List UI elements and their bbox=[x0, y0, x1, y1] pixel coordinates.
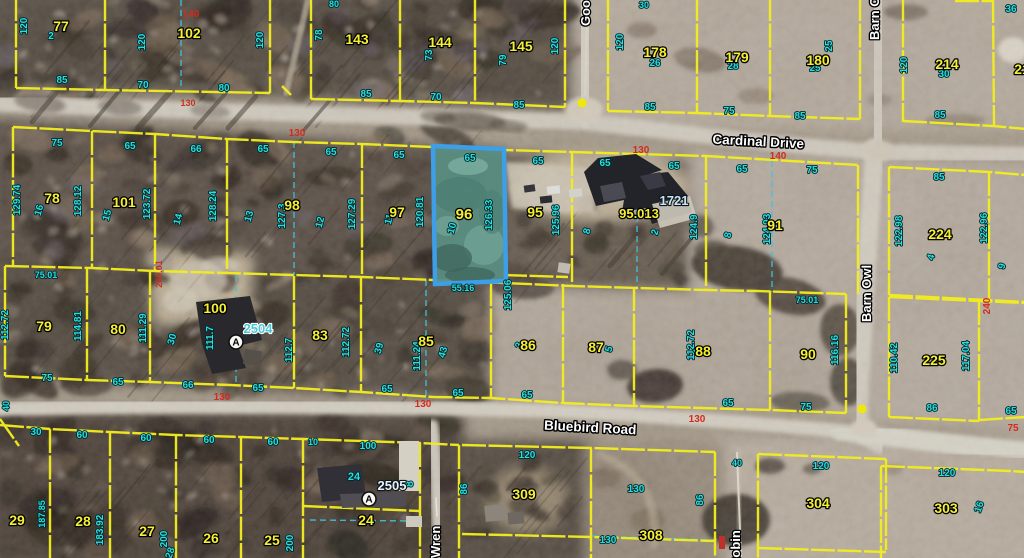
svg-text:308: 308 bbox=[639, 527, 663, 543]
svg-text:65: 65 bbox=[124, 141, 136, 152]
svg-text:40: 40 bbox=[732, 458, 742, 468]
svg-text:27: 27 bbox=[139, 523, 155, 539]
svg-text:110.42: 110.42 bbox=[889, 343, 900, 373]
svg-text:36: 36 bbox=[1005, 4, 1017, 15]
svg-text:120.81: 120.81 bbox=[415, 196, 426, 227]
svg-text:60: 60 bbox=[76, 430, 88, 441]
svg-text:78: 78 bbox=[44, 190, 60, 206]
svg-text:Robin: Robin bbox=[728, 530, 743, 558]
svg-text:111.29: 111.29 bbox=[138, 313, 149, 343]
svg-text:77: 77 bbox=[53, 18, 69, 34]
svg-text:304: 304 bbox=[806, 495, 830, 511]
svg-text:130: 130 bbox=[689, 414, 706, 425]
svg-text:60: 60 bbox=[267, 437, 279, 448]
svg-text:120: 120 bbox=[615, 33, 626, 50]
svg-text:240: 240 bbox=[982, 297, 993, 314]
svg-text:65: 65 bbox=[257, 144, 269, 155]
svg-text:65: 65 bbox=[381, 384, 393, 395]
svg-text:30: 30 bbox=[639, 0, 649, 10]
svg-text:60: 60 bbox=[140, 433, 152, 444]
svg-text:130: 130 bbox=[180, 98, 195, 108]
svg-text:187.85: 187.85 bbox=[37, 500, 47, 528]
svg-text:75: 75 bbox=[806, 165, 818, 176]
svg-text:117.04: 117.04 bbox=[961, 341, 972, 371]
svg-text:260.01: 260.01 bbox=[154, 260, 164, 288]
svg-text:80: 80 bbox=[329, 0, 339, 9]
svg-text:130: 130 bbox=[600, 535, 617, 546]
svg-text:100: 100 bbox=[203, 300, 227, 316]
svg-text:101: 101 bbox=[112, 194, 136, 210]
svg-text:86: 86 bbox=[459, 483, 470, 495]
svg-text:120: 120 bbox=[519, 450, 536, 461]
svg-text:Barn Ow: Barn Ow bbox=[867, 0, 882, 40]
svg-text:24: 24 bbox=[348, 471, 361, 483]
svg-text:2505: 2505 bbox=[378, 478, 407, 493]
svg-text:A: A bbox=[365, 495, 372, 506]
svg-text:75: 75 bbox=[41, 373, 53, 384]
svg-text:145: 145 bbox=[509, 38, 533, 54]
svg-text:98: 98 bbox=[284, 197, 300, 213]
svg-text:120: 120 bbox=[255, 31, 266, 48]
svg-text:70: 70 bbox=[430, 92, 442, 103]
svg-text:91: 91 bbox=[767, 217, 783, 233]
svg-text:70: 70 bbox=[137, 80, 149, 91]
svg-text:75: 75 bbox=[723, 106, 735, 117]
svg-text:120: 120 bbox=[137, 33, 148, 50]
svg-text:40: 40 bbox=[1, 401, 11, 411]
svg-text:90: 90 bbox=[800, 346, 816, 362]
svg-text:21: 21 bbox=[1014, 61, 1024, 77]
svg-text:86: 86 bbox=[520, 337, 536, 353]
svg-text:125.06: 125.06 bbox=[503, 279, 514, 310]
svg-text:225: 225 bbox=[922, 352, 946, 368]
svg-text:65: 65 bbox=[736, 164, 748, 175]
svg-text:122.96: 122.96 bbox=[979, 212, 990, 243]
svg-text:85: 85 bbox=[360, 89, 372, 100]
svg-text:96: 96 bbox=[456, 206, 473, 223]
svg-text:75.01: 75.01 bbox=[796, 295, 819, 305]
svg-text:A: A bbox=[232, 338, 239, 349]
svg-text:120: 120 bbox=[19, 17, 30, 34]
svg-text:130: 130 bbox=[289, 128, 306, 139]
svg-text:65: 65 bbox=[599, 158, 611, 169]
svg-text:65: 65 bbox=[1005, 406, 1017, 417]
svg-text:140: 140 bbox=[183, 9, 200, 20]
svg-text:10: 10 bbox=[308, 437, 318, 447]
svg-text:124.9: 124.9 bbox=[689, 214, 700, 239]
svg-text:179: 179 bbox=[725, 49, 749, 65]
svg-text:130: 130 bbox=[633, 145, 650, 156]
svg-text:200: 200 bbox=[285, 534, 296, 551]
svg-text:65: 65 bbox=[393, 150, 405, 161]
svg-text:95: 95 bbox=[527, 204, 543, 220]
svg-text:95.013: 95.013 bbox=[619, 206, 659, 221]
svg-text:130: 130 bbox=[415, 399, 432, 410]
svg-text:65: 65 bbox=[521, 390, 533, 401]
svg-text:2504: 2504 bbox=[244, 321, 274, 336]
svg-text:86: 86 bbox=[926, 403, 938, 414]
svg-text:65: 65 bbox=[452, 388, 464, 399]
svg-text:65: 65 bbox=[252, 383, 264, 394]
svg-text:100: 100 bbox=[360, 441, 377, 452]
svg-text:128.12: 128.12 bbox=[73, 185, 84, 216]
svg-text:30: 30 bbox=[30, 427, 42, 438]
svg-text:130: 130 bbox=[214, 392, 231, 403]
svg-text:85: 85 bbox=[644, 102, 656, 113]
svg-text:85: 85 bbox=[933, 172, 945, 183]
svg-text:80: 80 bbox=[110, 321, 126, 337]
svg-text:85: 85 bbox=[418, 333, 434, 349]
svg-text:128.24: 128.24 bbox=[208, 190, 219, 221]
svg-text:120: 120 bbox=[813, 461, 830, 472]
svg-text:Wren: Wren bbox=[428, 526, 443, 558]
svg-text:25: 25 bbox=[264, 532, 280, 548]
svg-text:112.72: 112.72 bbox=[0, 310, 11, 340]
svg-text:120: 120 bbox=[939, 468, 956, 479]
svg-text:88: 88 bbox=[695, 343, 711, 359]
svg-text:178: 178 bbox=[643, 44, 667, 60]
svg-text:55.16: 55.16 bbox=[452, 283, 475, 293]
svg-text:28: 28 bbox=[75, 513, 91, 529]
svg-text:65: 65 bbox=[722, 398, 734, 409]
svg-text:309: 309 bbox=[512, 486, 536, 502]
svg-text:111.7: 111.7 bbox=[205, 326, 216, 350]
svg-text:120: 120 bbox=[899, 56, 910, 73]
svg-text:1721: 1721 bbox=[660, 193, 689, 208]
svg-text:183.92: 183.92 bbox=[95, 514, 106, 545]
svg-text:25: 25 bbox=[824, 40, 835, 52]
svg-text:29: 29 bbox=[9, 512, 25, 528]
svg-text:112.7: 112.7 bbox=[284, 337, 295, 362]
svg-text:66: 66 bbox=[182, 380, 194, 391]
svg-text:83: 83 bbox=[312, 327, 328, 343]
svg-text:140: 140 bbox=[770, 151, 787, 162]
svg-text:116.16: 116.16 bbox=[830, 335, 841, 365]
svg-text:143: 143 bbox=[345, 31, 369, 47]
svg-text:224: 224 bbox=[928, 226, 952, 242]
svg-text:65: 65 bbox=[464, 153, 476, 164]
svg-text:200: 200 bbox=[159, 530, 170, 547]
svg-text:102: 102 bbox=[177, 25, 201, 41]
svg-text:114.81: 114.81 bbox=[73, 311, 84, 341]
svg-text:80: 80 bbox=[218, 83, 230, 94]
svg-text:214: 214 bbox=[935, 56, 959, 72]
svg-text:85: 85 bbox=[56, 75, 68, 86]
svg-text:65: 65 bbox=[325, 147, 337, 158]
svg-text:86: 86 bbox=[695, 494, 706, 506]
svg-text:125.96: 125.96 bbox=[551, 204, 562, 235]
svg-text:75: 75 bbox=[1007, 423, 1019, 434]
svg-text:123.72: 123.72 bbox=[142, 188, 153, 219]
svg-text:79: 79 bbox=[498, 54, 509, 66]
svg-text:65: 65 bbox=[532, 156, 544, 167]
svg-text:85: 85 bbox=[513, 100, 525, 111]
svg-text:60: 60 bbox=[203, 435, 215, 446]
svg-text:65: 65 bbox=[668, 161, 680, 172]
svg-text:79: 79 bbox=[36, 318, 52, 334]
svg-text:180: 180 bbox=[806, 52, 830, 68]
svg-text:97: 97 bbox=[389, 204, 405, 220]
svg-text:24: 24 bbox=[358, 512, 374, 528]
svg-text:66: 66 bbox=[190, 144, 202, 155]
svg-text:130: 130 bbox=[628, 484, 645, 495]
svg-text:87: 87 bbox=[588, 339, 604, 355]
svg-text:144: 144 bbox=[428, 34, 452, 50]
svg-text:78: 78 bbox=[314, 29, 325, 41]
svg-text:122.98: 122.98 bbox=[894, 215, 905, 246]
svg-text:127.29: 127.29 bbox=[347, 198, 358, 229]
svg-text:85: 85 bbox=[934, 110, 946, 121]
svg-text:26: 26 bbox=[203, 530, 219, 546]
svg-text:Barn Owl: Barn Owl bbox=[859, 265, 874, 322]
svg-text:129.74: 129.74 bbox=[12, 184, 23, 215]
svg-text:85: 85 bbox=[794, 111, 806, 122]
svg-text:120: 120 bbox=[550, 37, 561, 54]
svg-text:126.33: 126.33 bbox=[484, 199, 495, 230]
svg-text:75: 75 bbox=[51, 138, 63, 149]
svg-text:112.72: 112.72 bbox=[341, 327, 352, 357]
svg-text:65: 65 bbox=[112, 377, 124, 388]
svg-text:75: 75 bbox=[800, 402, 812, 413]
svg-text:73: 73 bbox=[424, 49, 435, 61]
svg-text:303: 303 bbox=[934, 500, 958, 516]
svg-text:Goo: Goo bbox=[578, 0, 593, 26]
svg-text:75.01: 75.01 bbox=[35, 270, 58, 280]
